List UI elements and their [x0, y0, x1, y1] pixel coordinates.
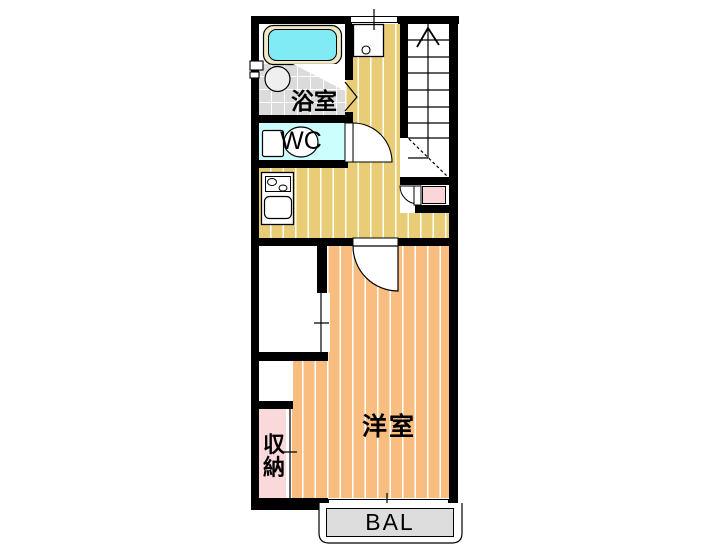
wall-segment	[259, 160, 348, 168]
wall-segment	[345, 24, 353, 80]
wall-segment	[415, 205, 449, 213]
wall-segment	[251, 16, 352, 24]
wall-segment	[251, 238, 353, 246]
balcony-label: BAL	[365, 509, 414, 536]
void-lower	[259, 361, 293, 401]
wall-segment	[251, 16, 259, 510]
wall-segment	[317, 246, 327, 293]
entry-mat	[422, 186, 446, 204]
wall-segment	[259, 115, 353, 123]
void-upper	[259, 246, 317, 352]
storage-label-char: 収	[263, 433, 285, 456]
wall-segment	[400, 24, 408, 138]
wall-segment	[251, 352, 328, 361]
wall-segment	[449, 16, 458, 510]
wall-segment	[251, 498, 328, 510]
window-strip	[317, 293, 330, 352]
toilet-label: WC	[278, 128, 324, 154]
western-room-label: 洋室	[357, 414, 421, 440]
bathroom-label: 浴室	[284, 89, 344, 113]
wall-segment	[251, 401, 293, 409]
wall-segment	[400, 177, 449, 185]
floor-plan: 浴室 WC 洋室 収 納 BAL	[0, 0, 710, 550]
storage-label: 収 納	[261, 433, 287, 479]
wall-segment	[398, 238, 449, 246]
balcony: BAL	[326, 508, 454, 537]
storage-label-char: 納	[263, 456, 285, 479]
